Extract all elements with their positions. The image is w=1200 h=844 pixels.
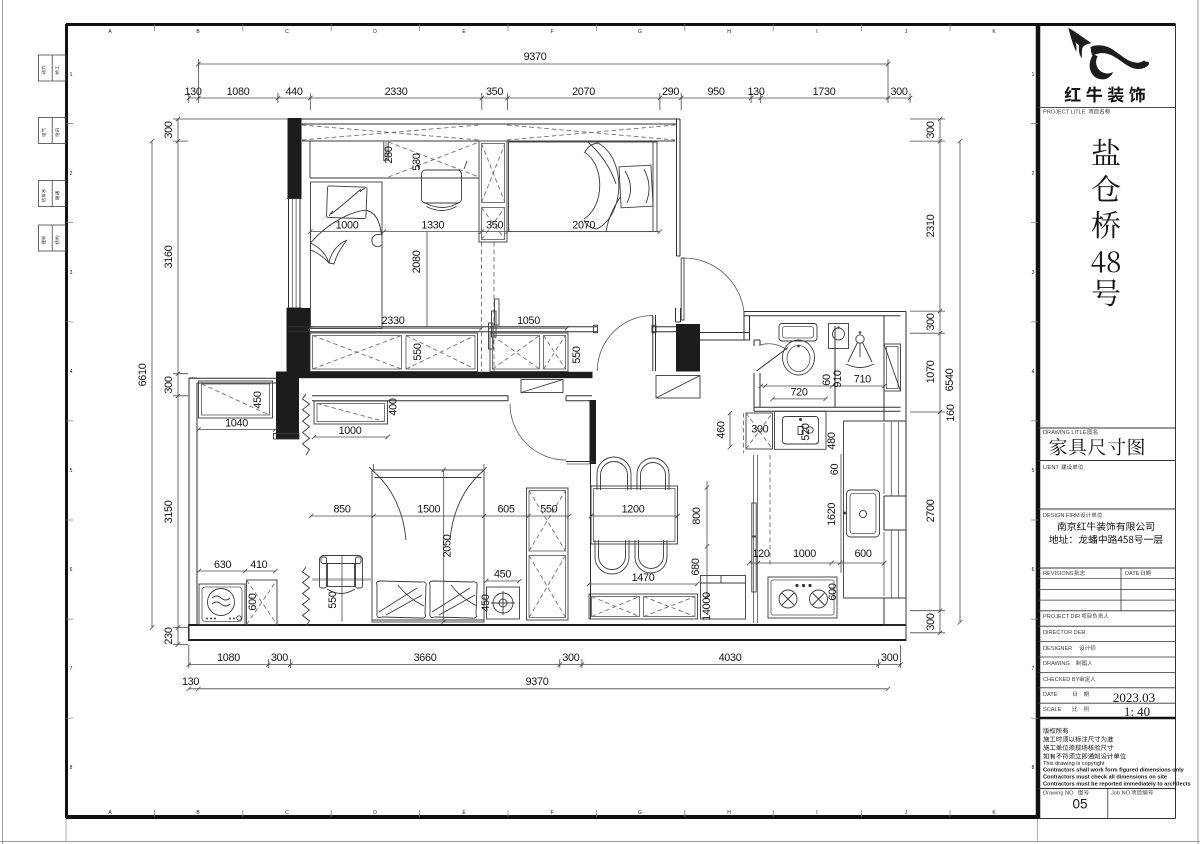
svg-text:3: 3 <box>1032 270 1035 276</box>
svg-text:05: 05 <box>1072 797 1087 812</box>
svg-text:2023.03: 2023.03 <box>1113 690 1155 705</box>
svg-text:300: 300 <box>925 313 937 330</box>
svg-text:1070: 1070 <box>925 360 937 383</box>
svg-text:DATE: DATE <box>1125 571 1140 577</box>
svg-text:I: I <box>816 29 817 35</box>
svg-text:2330: 2330 <box>385 86 408 98</box>
svg-text:130: 130 <box>182 676 199 688</box>
svg-text:300: 300 <box>163 376 175 393</box>
svg-text:C: C <box>285 810 289 816</box>
svg-text:5: 5 <box>70 468 73 474</box>
svg-text:I: I <box>816 810 817 816</box>
svg-text:1470: 1470 <box>632 572 655 584</box>
svg-text:2310: 2310 <box>925 214 937 237</box>
svg-text:Contractors must check all dim: Contractors must check all dimensions on… <box>1043 775 1167 781</box>
svg-text:Drawing NO: Drawing NO <box>1043 791 1074 797</box>
svg-text:910: 910 <box>832 370 844 387</box>
svg-text:480: 480 <box>826 432 838 449</box>
svg-text:7: 7 <box>70 666 73 672</box>
svg-text:2080: 2080 <box>411 250 423 273</box>
svg-text:280: 280 <box>383 146 395 163</box>
svg-text:520: 520 <box>800 423 812 440</box>
svg-text:PROJECT LITLE: PROJECT LITLE <box>1043 110 1086 116</box>
svg-text:710: 710 <box>854 374 871 386</box>
svg-text:Contractors must be reported i: Contractors must be reported immediately… <box>1043 782 1191 788</box>
svg-text:F: F <box>550 29 553 35</box>
svg-text:350: 350 <box>486 86 503 98</box>
svg-text:This drawing is copyright: This drawing is copyright <box>1043 761 1105 767</box>
svg-text:850: 850 <box>333 504 350 516</box>
svg-text:H: H <box>727 810 731 816</box>
svg-text:120: 120 <box>752 548 769 560</box>
svg-text:2: 2 <box>1032 171 1035 177</box>
svg-text:60: 60 <box>829 464 841 476</box>
svg-text:950: 950 <box>707 86 724 98</box>
svg-text:1000: 1000 <box>336 220 359 232</box>
svg-text:3160: 3160 <box>163 245 175 268</box>
svg-text:C: C <box>285 29 289 35</box>
svg-text:DESIGNER: DESIGNER <box>1043 646 1072 652</box>
svg-text:F: F <box>550 810 553 816</box>
svg-text:290: 290 <box>662 86 679 98</box>
svg-text:Job NO: Job NO <box>1111 791 1131 797</box>
svg-text:2070: 2070 <box>572 220 595 232</box>
svg-text:400: 400 <box>388 398 400 415</box>
svg-text:1730: 1730 <box>813 86 836 98</box>
svg-text:300: 300 <box>751 424 768 436</box>
svg-text:DATE: DATE <box>1043 692 1058 698</box>
svg-text:1050: 1050 <box>517 315 540 327</box>
svg-text:130: 130 <box>184 86 201 98</box>
svg-text:1080: 1080 <box>217 652 240 664</box>
svg-text:2: 2 <box>70 171 73 177</box>
svg-text:8: 8 <box>1032 765 1035 771</box>
svg-text:9370: 9370 <box>524 51 547 63</box>
svg-text:4030: 4030 <box>719 652 742 664</box>
svg-text:5: 5 <box>1032 468 1035 474</box>
svg-text:3660: 3660 <box>414 652 437 664</box>
svg-text:550: 550 <box>571 346 583 363</box>
svg-text:450: 450 <box>494 569 511 581</box>
svg-text:1000: 1000 <box>793 548 816 560</box>
svg-text:410: 410 <box>250 559 267 571</box>
svg-text:SCALE: SCALE <box>1043 707 1062 713</box>
svg-text:1040: 1040 <box>225 418 248 430</box>
svg-text:300: 300 <box>271 652 288 664</box>
svg-text:14000: 14000 <box>701 592 713 621</box>
svg-text:550: 550 <box>412 343 424 360</box>
svg-text:1: 1 <box>70 72 73 78</box>
svg-text:300: 300 <box>881 652 898 664</box>
svg-text:DESIGN FIRM: DESIGN FIRM <box>1043 513 1080 519</box>
svg-text:4: 4 <box>70 369 73 375</box>
svg-text:8: 8 <box>70 765 73 771</box>
svg-text:800: 800 <box>691 507 703 524</box>
svg-text:550: 550 <box>540 504 557 516</box>
svg-text:6: 6 <box>70 567 73 573</box>
svg-text:450: 450 <box>252 391 264 408</box>
svg-text:160: 160 <box>945 404 957 421</box>
svg-text:7: 7 <box>1032 666 1035 672</box>
svg-text:3: 3 <box>70 270 73 276</box>
svg-text:G: G <box>638 29 642 35</box>
svg-text:2700: 2700 <box>925 499 937 522</box>
svg-text:G: G <box>638 810 642 816</box>
svg-text:6540: 6540 <box>944 368 956 391</box>
svg-text:4: 4 <box>1032 369 1035 375</box>
svg-text:D: D <box>373 810 377 816</box>
svg-text:1: 1 <box>1032 72 1035 78</box>
svg-text:2330: 2330 <box>382 315 405 327</box>
svg-text:1620: 1620 <box>826 503 838 526</box>
svg-text:605: 605 <box>497 504 514 516</box>
svg-text:530: 530 <box>411 153 423 170</box>
svg-text:D: D <box>373 29 377 35</box>
svg-text:130: 130 <box>747 86 764 98</box>
svg-text:600: 600 <box>827 583 839 600</box>
svg-text:300: 300 <box>562 652 579 664</box>
svg-text:1500: 1500 <box>417 504 440 516</box>
svg-text:300: 300 <box>890 86 907 98</box>
svg-text:630: 630 <box>214 559 231 571</box>
svg-text:300: 300 <box>925 121 937 138</box>
svg-text:1000: 1000 <box>339 425 362 437</box>
svg-text:2050: 2050 <box>442 534 454 557</box>
svg-text:440: 440 <box>285 86 302 98</box>
svg-text:450: 450 <box>480 594 492 611</box>
svg-text:600: 600 <box>854 548 871 560</box>
svg-text:PROJECT DIR: PROJECT DIR <box>1043 614 1080 620</box>
svg-text:DRAWING LITLE: DRAWING LITLE <box>1043 430 1087 436</box>
svg-text:6: 6 <box>1032 567 1035 573</box>
svg-text:DIRECTOR DER: DIRECTOR DER <box>1043 630 1085 636</box>
svg-text:1080: 1080 <box>227 86 250 98</box>
svg-text:300: 300 <box>163 121 175 138</box>
svg-text:720: 720 <box>790 387 807 399</box>
svg-text:680: 680 <box>690 558 702 575</box>
svg-text:9370: 9370 <box>526 676 549 688</box>
svg-text:300: 300 <box>925 613 937 630</box>
svg-text:6610: 6610 <box>137 363 149 386</box>
svg-text:1330: 1330 <box>421 220 444 232</box>
svg-text:350: 350 <box>486 220 503 232</box>
svg-text:3150: 3150 <box>163 500 175 523</box>
svg-text:600: 600 <box>247 593 259 610</box>
svg-text:460: 460 <box>716 421 728 438</box>
svg-text:REVISIONS: REVISIONS <box>1043 571 1074 577</box>
svg-text:230: 230 <box>163 627 175 644</box>
svg-text:CHECKED BY: CHECKED BY <box>1043 677 1080 683</box>
svg-text:550: 550 <box>327 591 339 608</box>
svg-text:DRAWING: DRAWING <box>1043 661 1070 667</box>
svg-text:LIENT: LIENT <box>1043 465 1059 471</box>
svg-text:H: H <box>727 29 731 35</box>
svg-text:1200: 1200 <box>622 504 645 516</box>
svg-text:Contractors shall work form fi: Contractors shall work form figured dime… <box>1043 768 1185 774</box>
svg-text:2070: 2070 <box>572 86 595 98</box>
